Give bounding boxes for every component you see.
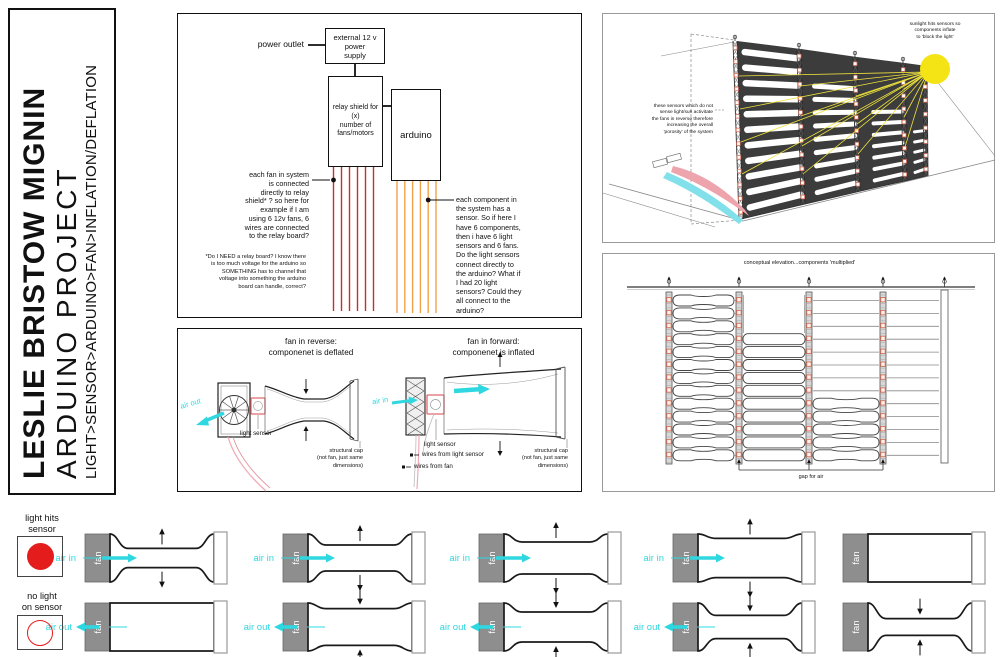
svg-text:fan: fan xyxy=(851,551,862,564)
perspective-panel: sunlight hits sensors so components infl… xyxy=(602,13,995,243)
title-panel: LESLIE BRISTOW MIGNIN ARDUINO PROJECT LI… xyxy=(8,8,116,495)
legend-no-light-on-sensor: no light on sensor xyxy=(5,591,79,613)
svg-text:air out: air out xyxy=(440,622,467,633)
structural-cap-label: structural cap (not fan, just same dimen… xyxy=(486,448,568,470)
sunlight-note: sunlight hits sensors so components infl… xyxy=(875,22,995,41)
sensor-wiring-note: each component in the system has a senso… xyxy=(456,195,551,315)
fan-reverse-title: fan in reverse: componenet is deflated xyxy=(221,336,401,358)
svg-text:fan: fan xyxy=(851,620,862,633)
svg-text:air in: air in xyxy=(253,553,274,564)
relay-footnote: *Do I NEED a relay board? I know there i… xyxy=(178,254,306,291)
svg-text:air in: air in xyxy=(643,553,664,564)
gap-for-air-label: gap for air xyxy=(723,474,899,480)
porosity-note: these sensors which do not sense light/s… xyxy=(621,104,713,136)
elevation-title: conceptual elevation...components 'multi… xyxy=(603,260,996,266)
legend-sensor-box xyxy=(17,615,63,650)
structural-cap-label: structural cap (not fan, just same dimen… xyxy=(281,448,363,470)
legend-sensor-box xyxy=(17,536,63,577)
power-supply-box: external 12 v power supply xyxy=(325,28,385,64)
arduino-box: arduino xyxy=(391,89,441,181)
sequence-drawing: fanair infanair infanair infanair infanf… xyxy=(0,505,1000,657)
wiring-diagram-panel: power outlet external 12 v power supply … xyxy=(177,13,582,318)
svg-text:air in: air in xyxy=(449,553,470,564)
wires-from-fan-label: wires from fan xyxy=(414,463,453,470)
sensor-lit-icon xyxy=(27,543,54,570)
relay-shield-box: relay shield for (x) number of fans/moto… xyxy=(328,76,383,167)
light-sensor-label: light sensor xyxy=(240,430,272,437)
author-name: LESLIE BRISTOW MIGNIN xyxy=(20,20,50,479)
elevation-drawing xyxy=(603,254,996,493)
project-board: LESLIE BRISTOW MIGNIN ARDUINO PROJECT LI… xyxy=(0,0,1000,657)
wires-from-light-sensor-label: wires from light sensor xyxy=(422,451,484,458)
fan-states-panel: fan in reverse: componenet is deflated f… xyxy=(177,328,582,492)
elevation-panel: conceptual elevation...components 'multi… xyxy=(602,253,995,492)
sequence-section: fanair infanair infanair infanair infanf… xyxy=(0,505,1000,657)
project-title: ARDUINO PROJECT xyxy=(53,20,81,479)
power-outlet-label: power outlet xyxy=(208,39,304,49)
svg-text:air out: air out xyxy=(244,622,271,633)
fan-wiring-note: each fan in system is connected directly… xyxy=(178,171,309,241)
light-sensor-label: light sensor xyxy=(424,441,456,448)
project-subtitle: LIGHT>SENSOR>ARDUINO>FAN>INFLATION/DEFLA… xyxy=(84,20,99,479)
legend-light-hits-sensor: light hits sensor xyxy=(5,513,79,535)
sensor-unlit-icon xyxy=(27,620,53,646)
fan-forward-title: fan in forward: componenet is inflated xyxy=(406,336,581,358)
svg-text:air out: air out xyxy=(634,622,661,633)
